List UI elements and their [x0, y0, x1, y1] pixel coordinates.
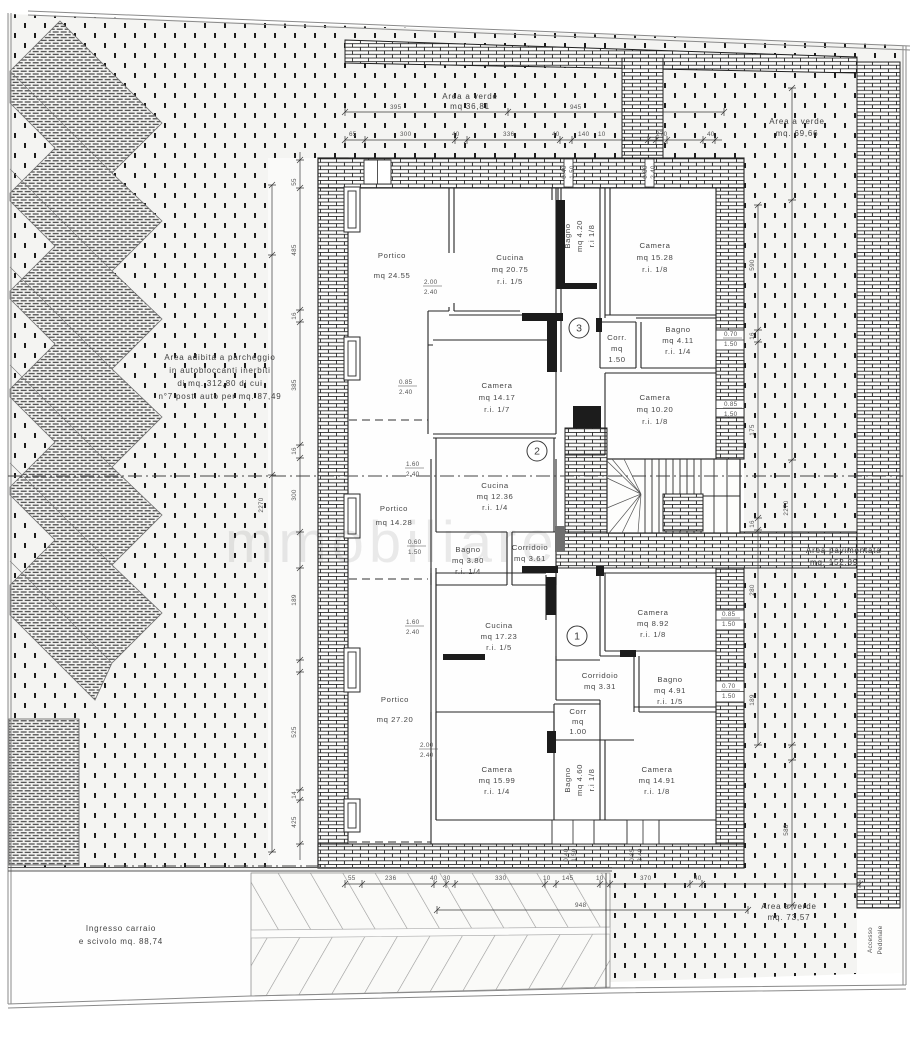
svg-text:0.85: 0.85 [724, 401, 738, 408]
svg-text:r.i. 1/5: r.i. 1/5 [497, 277, 523, 286]
svg-text:mq 8.92: mq 8.92 [637, 619, 669, 628]
svg-text:2.40: 2.40 [399, 389, 413, 396]
svg-text:2.40: 2.40 [637, 848, 644, 862]
svg-text:Corr.: Corr. [607, 333, 627, 342]
svg-text:r.i. 1/7: r.i. 1/7 [484, 405, 510, 414]
svg-text:0.85: 0.85 [399, 379, 413, 386]
svg-text:r.i. 1/5: r.i. 1/5 [657, 697, 683, 706]
svg-text:Accesso: Accesso [867, 927, 874, 953]
svg-text:2270: 2270 [783, 500, 790, 515]
svg-text:Camera: Camera [638, 608, 669, 617]
svg-text:mq 14.91: mq 14.91 [639, 776, 676, 785]
svg-text:mq 17.23: mq 17.23 [481, 632, 518, 641]
svg-text:30: 30 [443, 875, 451, 882]
svg-text:2.40: 2.40 [406, 471, 420, 478]
svg-text:Pedonale: Pedonale [877, 925, 884, 954]
svg-text:Camera: Camera [482, 765, 513, 774]
svg-text:1: 1 [574, 631, 580, 643]
svg-text:mq 10.20: mq 10.20 [637, 405, 674, 414]
svg-text:r.i. 1/8: r.i. 1/8 [642, 265, 668, 274]
svg-text:425: 425 [291, 816, 298, 828]
svg-text:40: 40 [452, 131, 460, 138]
svg-text:Corr: Corr [569, 707, 586, 716]
svg-text:40: 40 [552, 131, 560, 138]
svg-text:Camera: Camera [640, 241, 671, 250]
svg-text:mq 4.20: mq 4.20 [575, 220, 584, 252]
svg-text:Bagno: Bagno [665, 325, 690, 334]
svg-text:2: 2 [534, 446, 540, 458]
svg-text:di mq. 312,80 di cui: di mq. 312,80 di cui [177, 379, 262, 388]
svg-text:40: 40 [430, 875, 438, 882]
svg-text:Portico: Portico [381, 695, 409, 704]
svg-text:Bagno: Bagno [657, 675, 682, 684]
svg-text:0.70: 0.70 [722, 683, 736, 690]
svg-text:2.00: 2.00 [424, 279, 438, 286]
svg-text:1.50: 1.50 [722, 621, 736, 628]
svg-text:n°7 posti auto per mq. 87: n°7 posti auto per mq. 87,49 [159, 392, 282, 401]
svg-text:mq: mq [611, 344, 623, 353]
svg-text:mq. 152,89: mq. 152,89 [810, 558, 858, 567]
svg-text:Area a verde: Area a verde [442, 92, 497, 101]
svg-text:mq 27.20: mq 27.20 [377, 715, 414, 724]
svg-text:588: 588 [783, 824, 790, 836]
svg-text:10: 10 [598, 131, 606, 138]
svg-text:10: 10 [596, 875, 604, 882]
svg-text:948: 948 [575, 902, 587, 909]
svg-text:40: 40 [694, 875, 702, 882]
svg-text:1.60: 1.60 [406, 619, 420, 626]
svg-text:mq 4.60: mq 4.60 [575, 764, 584, 796]
svg-text:395: 395 [390, 104, 402, 111]
svg-text:Area a verde: Area a verde [761, 902, 816, 911]
svg-text:590: 590 [749, 259, 756, 271]
svg-text:330: 330 [495, 875, 507, 882]
svg-text:370: 370 [640, 875, 652, 882]
svg-text:0.85: 0.85 [629, 848, 636, 862]
svg-text:1.50: 1.50 [571, 848, 578, 862]
svg-text:189: 189 [291, 594, 298, 606]
svg-text:300: 300 [400, 131, 412, 138]
svg-text:mq 14.17: mq 14.17 [479, 393, 516, 402]
svg-text:55: 55 [291, 178, 298, 186]
svg-text:175: 175 [749, 424, 756, 436]
svg-text:0.80: 0.80 [642, 165, 649, 179]
svg-text:mmobiliare: mmobiliare [225, 510, 559, 575]
svg-text:r.i. 1/4: r.i. 1/4 [484, 787, 510, 796]
svg-text:Corridoio: Corridoio [582, 671, 619, 680]
svg-text:mq 15.28: mq 15.28 [637, 253, 674, 262]
svg-text:mq 20.75: mq 20.75 [492, 265, 529, 274]
svg-text:r.i. 1/5: r.i. 1/5 [486, 643, 512, 652]
svg-text:55: 55 [348, 875, 356, 882]
svg-text:Area pavimentata: Area pavimentata [806, 546, 882, 555]
svg-text:2.40: 2.40 [420, 752, 434, 759]
svg-text:Cucina: Cucina [481, 481, 509, 490]
svg-text:40: 40 [707, 131, 715, 138]
svg-text:485: 485 [291, 244, 298, 256]
svg-text:270: 270 [656, 131, 668, 138]
svg-text:mq 24.55: mq 24.55 [374, 271, 411, 280]
svg-text:1.60: 1.60 [406, 461, 420, 468]
svg-text:280: 280 [749, 584, 756, 596]
svg-text:0.40: 0.40 [563, 848, 570, 862]
svg-text:Cucina: Cucina [496, 253, 524, 262]
svg-text:r.i. 1/8: r.i. 1/8 [644, 787, 670, 796]
svg-text:r.i. 1/4: r.i. 1/4 [665, 347, 691, 356]
svg-text:mq. 69,66: mq. 69,66 [776, 129, 819, 138]
svg-text:Area adibita a parcheggio: Area adibita a parcheggio [164, 353, 275, 362]
svg-text:1.00: 1.00 [569, 727, 586, 736]
svg-text:14: 14 [291, 791, 298, 799]
svg-text:65: 65 [349, 131, 357, 138]
svg-text:mq 4.91: mq 4.91 [654, 686, 686, 695]
svg-text:0.40: 0.40 [561, 165, 568, 179]
svg-text:140: 140 [578, 131, 590, 138]
svg-text:1.50: 1.50 [724, 341, 738, 348]
svg-text:mq. 73,57: mq. 73,57 [768, 913, 811, 922]
svg-text:236: 236 [385, 875, 397, 882]
svg-text:r.i. 1/8: r.i. 1/8 [640, 630, 666, 639]
svg-text:Bagno: Bagno [563, 767, 572, 792]
svg-text:16: 16 [749, 332, 756, 340]
svg-text:Bagno: Bagno [563, 223, 572, 248]
svg-text:945: 945 [570, 104, 582, 111]
svg-text:r.i 1/8: r.i 1/8 [587, 224, 596, 247]
svg-text:189: 189 [749, 694, 756, 706]
svg-text:mq 4.11: mq 4.11 [662, 336, 693, 345]
svg-text:Portico: Portico [378, 251, 406, 260]
svg-text:10: 10 [543, 875, 551, 882]
svg-text:Ingresso carraio: Ingresso carraio [86, 924, 156, 933]
svg-text:Camera: Camera [482, 381, 513, 390]
svg-text:3: 3 [576, 323, 582, 335]
svg-text:16: 16 [749, 520, 756, 528]
svg-text:2.40: 2.40 [424, 289, 438, 296]
svg-text:r.i 1/8: r.i 1/8 [587, 768, 596, 791]
svg-text:mq 36,81: mq 36,81 [450, 102, 490, 111]
svg-text:16: 16 [291, 312, 298, 320]
svg-text:in autobloccanti inerbiti: in autobloccanti inerbiti [169, 366, 270, 375]
svg-text:2.00: 2.00 [420, 742, 434, 749]
svg-text:0.70: 0.70 [724, 331, 738, 338]
svg-text:1.50: 1.50 [724, 411, 738, 418]
svg-text:Cucina: Cucina [485, 621, 513, 630]
svg-text:2.40: 2.40 [406, 629, 420, 636]
svg-text:300: 300 [291, 489, 298, 501]
svg-text:Area a verde: Area a verde [769, 117, 824, 126]
svg-text:145: 145 [562, 875, 574, 882]
svg-text:16: 16 [291, 447, 298, 455]
svg-text:mq 12.36: mq 12.36 [477, 492, 514, 501]
svg-text:525: 525 [291, 726, 298, 738]
svg-text:2.40: 2.40 [650, 165, 657, 179]
svg-text:1.50: 1.50 [722, 693, 736, 700]
svg-text:mq: mq [572, 717, 584, 726]
svg-text:0.85: 0.85 [722, 611, 736, 618]
svg-text:1.50: 1.50 [608, 355, 625, 364]
svg-text:Camera: Camera [642, 765, 673, 774]
svg-text:Camera: Camera [640, 393, 671, 402]
svg-text:r.i. 1/8: r.i. 1/8 [642, 417, 668, 426]
svg-text:1.50: 1.50 [569, 165, 576, 179]
svg-text:336: 336 [503, 131, 515, 138]
svg-text:e scivolo mq. 88,74: e scivolo mq. 88,74 [79, 937, 163, 946]
svg-text:mq 15.99: mq 15.99 [479, 776, 516, 785]
svg-text:385: 385 [291, 379, 298, 391]
svg-text:mq 3.31: mq 3.31 [584, 682, 616, 691]
